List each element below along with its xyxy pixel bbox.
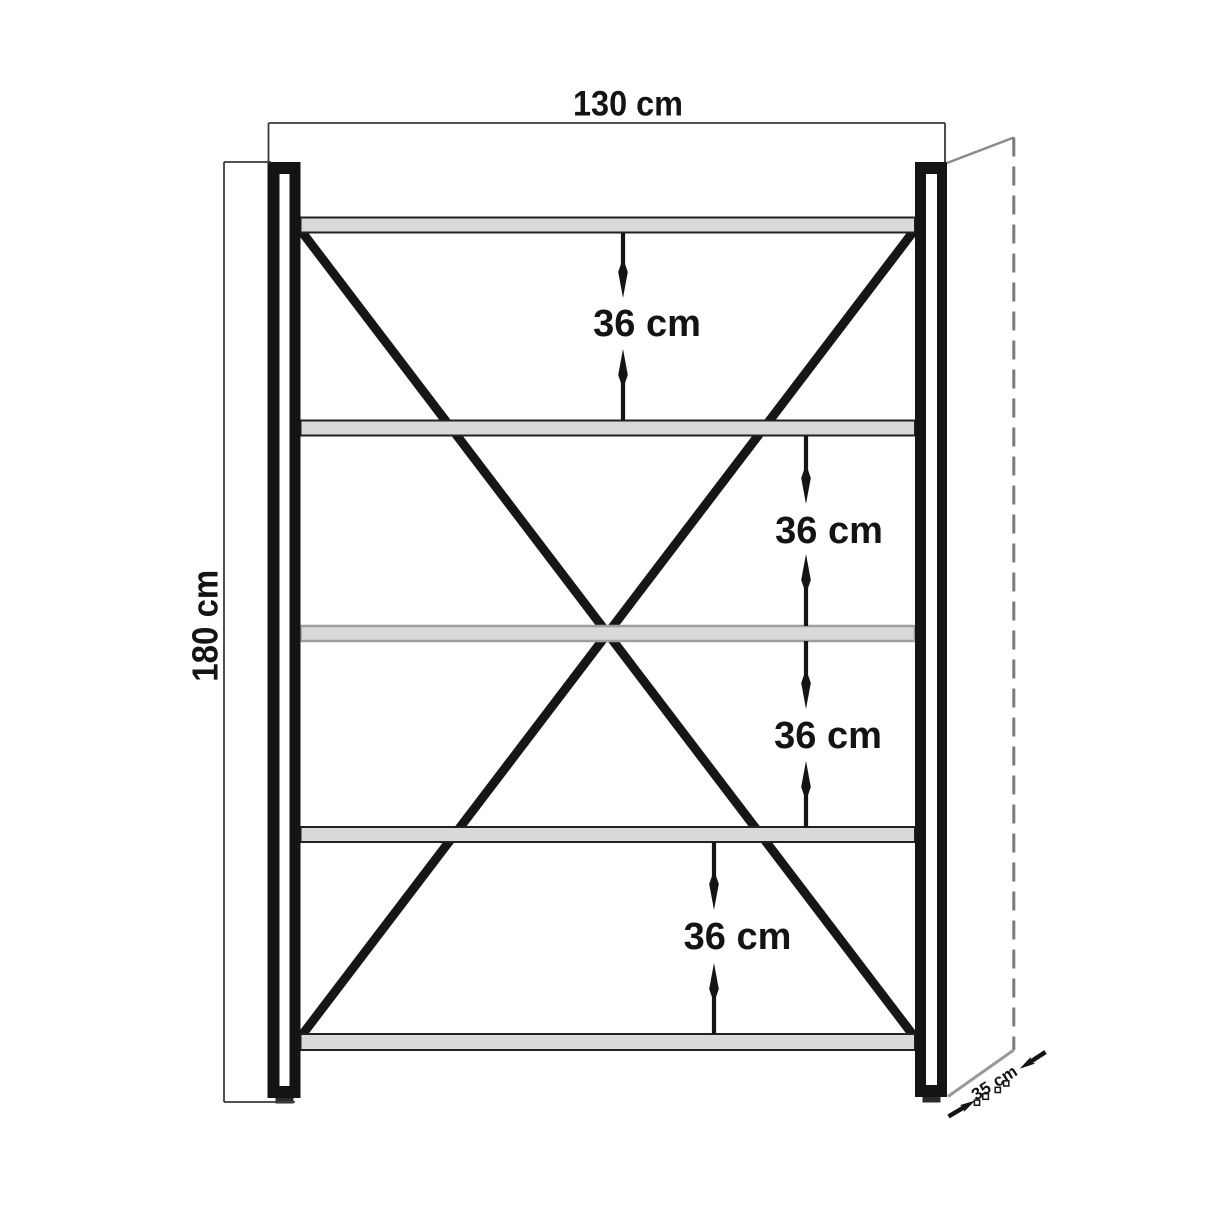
svg-text:36 cm: 36 cm (684, 916, 792, 958)
svg-text:180 cm: 180 cm (185, 570, 226, 682)
svg-text:130 cm: 130 cm (573, 85, 683, 124)
svg-text:36 cm: 36 cm (774, 715, 882, 757)
svg-text:36 cm: 36 cm (593, 303, 701, 345)
svg-text:36 cm: 36 cm (775, 510, 883, 552)
